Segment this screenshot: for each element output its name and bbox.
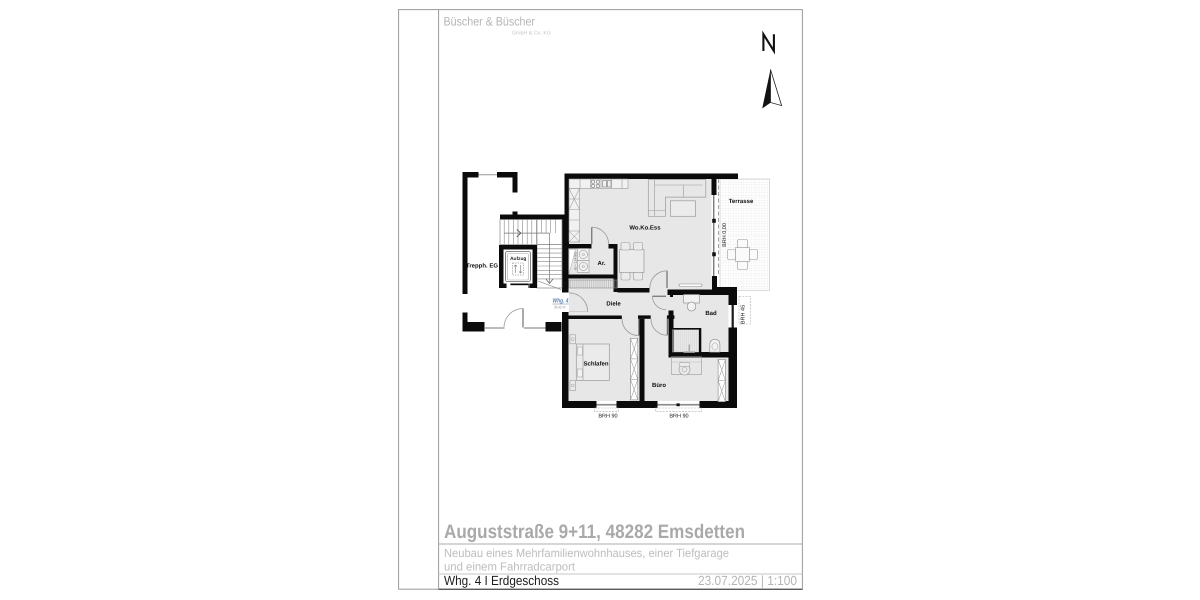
svg-text:Terrasse: Terrasse [729,198,754,205]
svg-text:Büro: Büro [652,382,666,389]
svg-text:Diele: Diele [606,301,621,308]
svg-text:Auguststraße 9+11, 48282 Emsde: Auguststraße 9+11, 48282 Emsdetten [444,521,745,543]
svg-text:Neubau eines Mehrfamilienwohnh: Neubau eines Mehrfamilienwohnhauses, ein… [444,546,729,560]
svg-text:Bad: Bad [705,310,717,317]
svg-text:Whg. 4 I Erdgeschoss: Whg. 4 I Erdgeschoss [444,573,559,588]
svg-text:Schlafen: Schlafen [583,361,608,368]
svg-text:60 + 1,5F B/S: 60 + 1,5F B/S [573,252,577,270]
svg-text:BRH 90: BRH 90 [669,413,688,419]
svg-text:23.07.2025 | 1:100: 23.07.2025 | 1:100 [698,573,797,588]
svg-text:BRH 45: BRH 45 [741,305,747,324]
svg-text:Büscher & Büscher: Büscher & Büscher [444,15,536,29]
svg-text:Trepph. EG: Trepph. EG [466,263,498,270]
svg-text:und einem Fahrradcarport: und einem Fahrradcarport [444,559,576,573]
svg-text:GmbH & Co. KG: GmbH & Co. KG [512,31,551,37]
svg-text:Ar.: Ar. [597,260,605,267]
svg-text:BRH 0,00: BRH 0,00 [722,223,728,247]
svg-text:80,42 m²: 80,42 m² [555,304,566,309]
svg-text:BRH 90: BRH 90 [598,413,617,419]
svg-text:Wo.Ko.Ess: Wo.Ko.Ess [629,225,661,232]
svg-text:Aufzug: Aufzug [510,256,526,262]
